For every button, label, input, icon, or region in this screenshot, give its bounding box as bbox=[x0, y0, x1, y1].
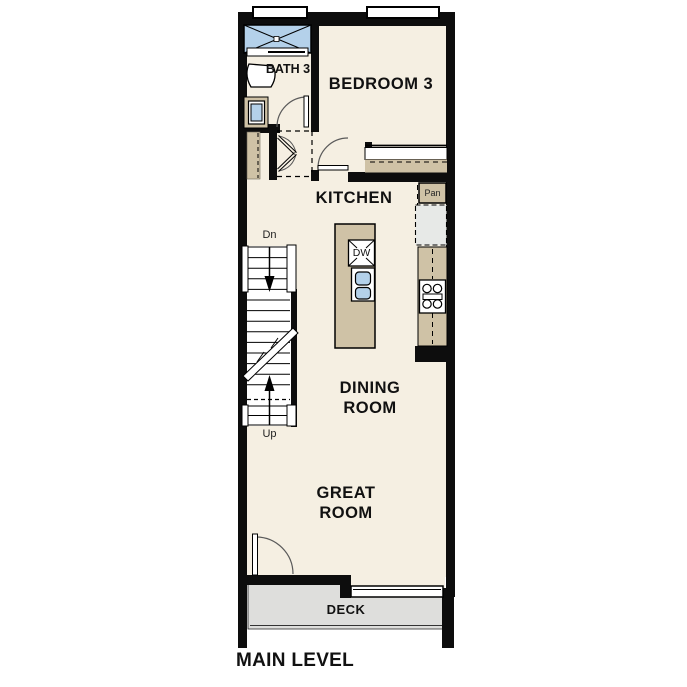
floorplan-drawing bbox=[0, 0, 687, 687]
floorplan-page: BATH 3 BEDROOM 3 KITCHEN DINING ROOM GRE… bbox=[0, 0, 687, 687]
stairs-down-label: Dn bbox=[253, 229, 286, 241]
island-sink bbox=[352, 268, 375, 301]
shower bbox=[244, 25, 311, 56]
kitchen-island bbox=[335, 224, 375, 348]
stairs-up-label: Up bbox=[253, 428, 286, 440]
deck-label: DECK bbox=[316, 602, 376, 617]
page-title: MAIN LEVEL bbox=[236, 650, 436, 672]
bath-label: BATH 3 bbox=[264, 62, 312, 77]
dishwasher-label: DW bbox=[348, 247, 375, 259]
bedroom-label: BEDROOM 3 bbox=[312, 74, 450, 94]
kitchen-label: KITCHEN bbox=[295, 188, 413, 208]
refrigerator bbox=[416, 205, 447, 245]
hall-closet bbox=[247, 132, 260, 179]
staircase bbox=[242, 245, 298, 426]
great-room-label: GREAT ROOM bbox=[298, 483, 394, 523]
top-window-left bbox=[253, 7, 307, 18]
deck-window bbox=[351, 586, 443, 597]
toilet bbox=[244, 97, 268, 128]
top-window-right bbox=[367, 7, 439, 18]
pantry-label: Pan bbox=[419, 188, 446, 198]
stove bbox=[420, 280, 446, 313]
bedroom-closet bbox=[365, 146, 447, 173]
dining-label: DINING ROOM bbox=[320, 378, 420, 418]
